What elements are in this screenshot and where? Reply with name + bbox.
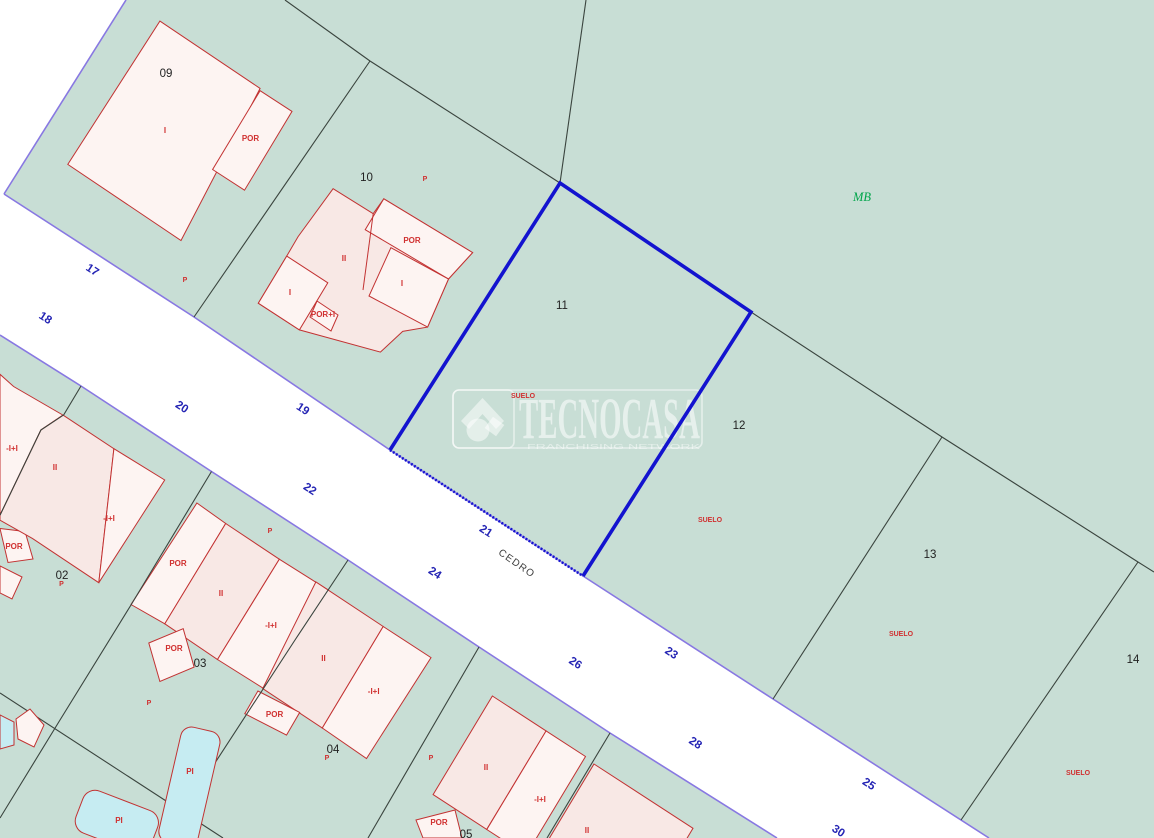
svg-text:POR: POR: [403, 236, 421, 245]
svg-text:POR: POR: [169, 559, 187, 568]
svg-text:MB: MB: [852, 190, 871, 204]
svg-text:I: I: [401, 279, 403, 288]
svg-text:P: P: [183, 277, 188, 284]
svg-text:PI: PI: [186, 767, 194, 776]
svg-text:-I+I: -I+I: [103, 514, 115, 523]
svg-text:FRANCHISING NETWORK: FRANCHISING NETWORK: [527, 444, 701, 451]
svg-text:12: 12: [733, 420, 746, 432]
svg-text:SUELO: SUELO: [698, 517, 723, 524]
svg-text:P: P: [325, 755, 330, 762]
svg-text:09: 09: [160, 68, 173, 80]
svg-text:11: 11: [556, 300, 568, 312]
svg-text:POR: POR: [242, 134, 260, 143]
svg-text:II: II: [585, 826, 589, 835]
svg-text:II: II: [53, 463, 57, 472]
svg-text:TECNOCASA: TECNOCASA: [519, 386, 700, 451]
svg-text:P: P: [147, 700, 152, 707]
svg-text:I: I: [289, 288, 291, 297]
svg-text:14: 14: [1127, 654, 1140, 666]
svg-text:13: 13: [924, 549, 937, 561]
svg-text:P: P: [268, 528, 273, 535]
svg-text:POR+I: POR+I: [311, 310, 335, 319]
svg-text:II: II: [342, 254, 346, 263]
svg-text:03: 03: [194, 658, 207, 670]
svg-text:SUELO: SUELO: [1066, 770, 1091, 777]
svg-text:-I+I: -I+I: [368, 687, 380, 696]
svg-text:SUELO: SUELO: [889, 631, 914, 638]
svg-text:POR: POR: [430, 818, 448, 827]
svg-text:II: II: [219, 589, 223, 598]
svg-text:II: II: [321, 654, 325, 663]
svg-text:-I+I: -I+I: [6, 444, 18, 453]
svg-text:-I+I: -I+I: [534, 795, 546, 804]
svg-text:POR: POR: [5, 542, 23, 551]
svg-text:POR: POR: [266, 710, 284, 719]
svg-text:P: P: [423, 176, 428, 183]
svg-text:II: II: [484, 763, 488, 772]
svg-text:SUELO: SUELO: [511, 393, 536, 400]
svg-text:05: 05: [460, 829, 473, 838]
svg-text:I: I: [164, 126, 166, 135]
svg-text:P: P: [429, 755, 434, 762]
svg-text:10: 10: [360, 172, 373, 184]
svg-text:P: P: [59, 581, 64, 588]
svg-text:-I+I: -I+I: [265, 621, 277, 630]
svg-text:PI: PI: [115, 816, 123, 825]
svg-text:POR: POR: [165, 644, 183, 653]
